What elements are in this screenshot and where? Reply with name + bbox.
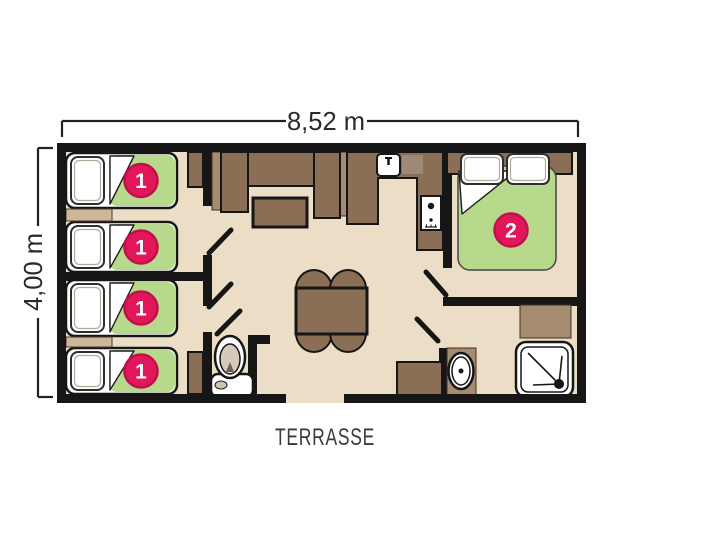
bathroom-cabinet xyxy=(520,305,571,338)
bed-capacity-label: 1 xyxy=(135,298,147,321)
single-bed-3: 1 xyxy=(66,280,177,336)
single-bed-2: 1 xyxy=(66,222,177,272)
nightstand-2 xyxy=(66,337,112,347)
terrace-label: TERRASSE xyxy=(275,424,375,451)
pillow-icon xyxy=(71,157,104,204)
shower-drain xyxy=(554,379,564,389)
sofa-seat xyxy=(221,152,248,212)
wardrobe-1 xyxy=(188,152,203,187)
pillow-icon xyxy=(507,154,549,184)
sofa-seat xyxy=(314,152,340,218)
floorplan-page: 8,52 m 4,00 m 1 xyxy=(0,0,710,533)
terrace-door-opening xyxy=(286,394,344,404)
double-bed: 2 xyxy=(447,152,572,270)
wall xyxy=(203,143,212,206)
bed-capacity-label: 1 xyxy=(135,361,147,384)
left-dimension: 4,00 m xyxy=(18,148,53,397)
wardrobe-2 xyxy=(188,352,203,394)
fridge-icon xyxy=(421,196,441,230)
fridge-knob xyxy=(429,218,432,221)
washbasin-icon xyxy=(447,348,476,397)
hall-cabinet xyxy=(397,362,442,397)
pillow-icon xyxy=(461,154,503,184)
wall xyxy=(248,335,270,344)
coffee-table xyxy=(253,198,307,227)
single-bed-4: 1 xyxy=(66,348,177,394)
stove-icon xyxy=(402,155,423,174)
bed-capacity-label: 1 xyxy=(135,170,147,193)
pillow-icon xyxy=(71,226,104,268)
top-dimension: 8,52 m xyxy=(62,106,578,137)
dining-set xyxy=(296,270,367,352)
height-dimension-label: 4,00 m xyxy=(18,233,48,311)
sofa-armrest xyxy=(212,152,221,210)
width-dimension-label: 8,52 m xyxy=(287,106,365,136)
pillow-icon xyxy=(71,284,104,332)
flush-button xyxy=(215,381,227,389)
dining-table xyxy=(296,288,367,334)
single-bed-1: 1 xyxy=(66,153,177,208)
nightstand-1 xyxy=(66,209,112,221)
shower-icon xyxy=(516,342,573,397)
bed-capacity-label: 2 xyxy=(505,220,517,243)
fridge-knob xyxy=(428,203,434,209)
floorplan-canvas: 8,52 m 4,00 m 1 xyxy=(0,0,710,533)
drain xyxy=(459,369,464,374)
bed-capacity-label: 1 xyxy=(135,237,147,260)
